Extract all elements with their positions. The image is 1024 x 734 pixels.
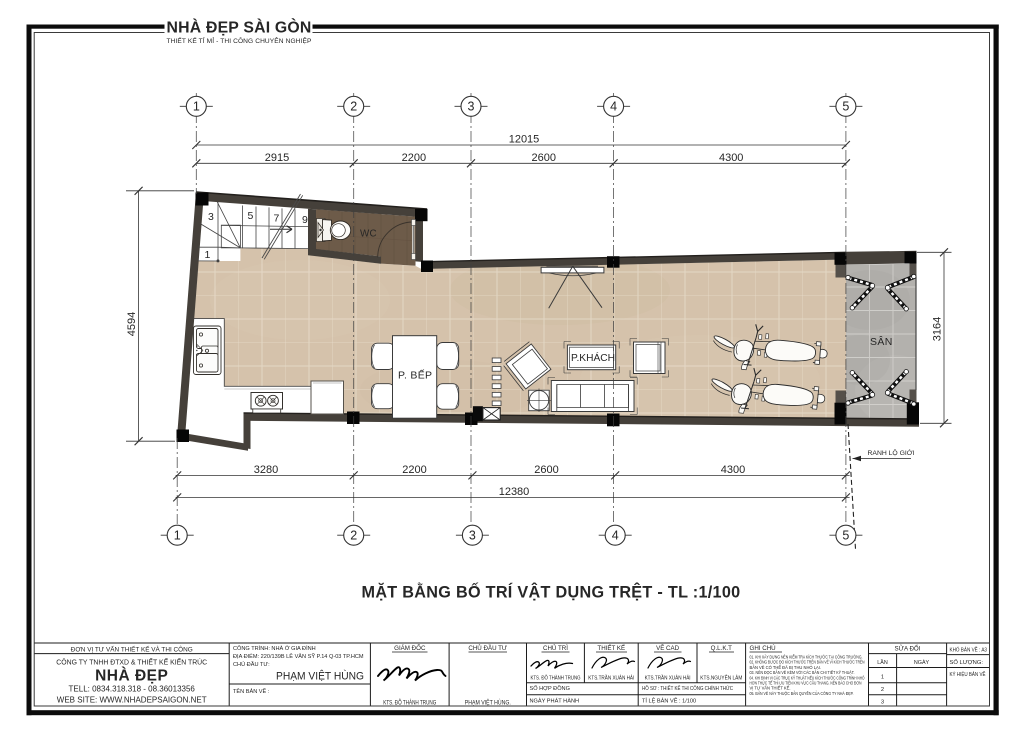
svg-text:2200: 2200 [402,152,426,164]
svg-text:4300: 4300 [719,152,743,164]
svg-text:KTS.TRẦN XUÂN HẢI: KTS.TRẦN XUÂN HẢI [588,674,634,681]
svg-text:2200: 2200 [402,464,426,476]
svg-text:NHÀ ĐẸP SÀI GÒN: NHÀ ĐẸP SÀI GÒN [167,17,312,36]
svg-text:NGÀY PHÁT HÀNH: NGÀY PHÁT HÀNH [530,698,580,705]
svg-text:1: 1 [193,100,200,114]
svg-text:1: 1 [205,249,211,261]
svg-text:2600: 2600 [532,152,556,164]
svg-text:12380: 12380 [499,486,530,498]
svg-text:1: 1 [881,675,884,681]
svg-text:3280: 3280 [254,464,278,476]
svg-text:3164: 3164 [932,317,944,341]
svg-text:KHỔ BẢN VẼ : A3: KHỔ BẢN VẼ : A3 [950,646,988,653]
svg-text:LẦN: LẦN [877,659,888,666]
svg-text:TỈ LỆ BẢN VẼ : 1/100: TỈ LỆ BẢN VẼ : 1/100 [642,697,696,705]
svg-text:CÔNG TRÌNH: NHÀ Ở GIA ĐÌNH: CÔNG TRÌNH: NHÀ Ở GIA ĐÌNH [233,645,316,652]
svg-text:1: 1 [174,529,181,543]
svg-text:4300: 4300 [721,464,745,476]
svg-text:4: 4 [612,529,619,543]
svg-text:Q.L.K.T: Q.L.K.T [711,645,733,652]
svg-text:GIÁM ĐỐC: GIÁM ĐỐC [394,645,426,652]
svg-text:KTS. ĐỖ THÀNH TRUNG: KTS. ĐỖ THÀNH TRUNG [531,674,581,681]
svg-text:3: 3 [469,529,476,543]
svg-text:2915: 2915 [265,152,289,164]
svg-text:KTS.NGUYỄN LÂM: KTS.NGUYỄN LÂM [700,674,742,681]
svg-text:3: 3 [881,700,884,706]
svg-text:3: 3 [468,100,475,114]
svg-text:P. BẾP: P. BẾP [398,369,432,382]
svg-text:WEB SITE: WWW.NHADEPSAIGON.NET: WEB SITE: WWW.NHADEPSAIGON.NET [57,695,207,704]
svg-text:4594: 4594 [126,312,138,336]
svg-text:5: 5 [842,529,849,543]
svg-text:GHI CHÚ: GHI CHÚ [750,645,776,652]
svg-text:VẼ CAD: VẼ CAD [656,645,680,652]
svg-text:5: 5 [842,100,849,114]
svg-text:PHẠM VIỆT HÙNG.: PHẠM VIỆT HÙNG. [465,699,511,707]
svg-text:SÂN: SÂN [870,335,893,348]
svg-text:9: 9 [302,214,308,226]
svg-text:KTS.TRẦN XUÂN HẢI: KTS.TRẦN XUÂN HẢI [645,674,691,681]
svg-text:MẶT BẰNG BỐ TRÍ VẬT DỤNG TRỆT: MẶT BẰNG BỐ TRÍ VẬT DỤNG TRỆT - TL :1/10… [362,581,741,601]
svg-text:12015: 12015 [509,134,540,146]
svg-text:NGÀY: NGÀY [914,659,930,666]
svg-text:SỬA ĐỔI: SỬA ĐỔI [895,645,921,652]
svg-text:2600: 2600 [534,464,558,476]
svg-text:SỐ LƯỢNG:: SỐ LƯỢNG: [950,659,984,666]
svg-text:THIẾT KẾ: THIẾT KẾ [597,645,625,652]
svg-text:KÝ HIỆU BẢN VẼ: KÝ HIỆU BẢN VẼ [950,670,986,678]
svg-text:3: 3 [208,211,214,223]
svg-text:P.KHÁCH: P.KHÁCH [571,351,615,364]
svg-text:4: 4 [610,100,617,114]
svg-text:05. BẢN VẼ NÀY THUỘC BẢN QUYỀN: 05. BẢN VẼ NÀY THUỘC BẢN QUYỀN CỦA CÔNG … [750,691,854,696]
svg-text:SỐ HỢP ĐỒNG: SỐ HỢP ĐỒNG [530,685,570,692]
svg-text:KTS. ĐỖ THÀNH TRUNG: KTS. ĐỖ THÀNH TRUNG [383,700,436,707]
svg-text:2: 2 [350,529,357,543]
svg-text:CHỦ ĐẦU TƯ:: CHỦ ĐẦU TƯ: [233,661,270,668]
svg-text:2: 2 [350,100,357,114]
svg-text:CHỦ TRÌ: CHỦ TRÌ [543,645,568,652]
svg-text:5: 5 [248,210,254,222]
svg-text:NHÀ ĐẸP: NHÀ ĐẸP [95,668,168,685]
svg-text:RANH LỘ GIỚI: RANH LỘ GIỚI [868,448,915,457]
svg-text:HỒ SƠ : THIẾT KẾ THI CÔNG CHÍN: HỒ SƠ : THIẾT KẾ THI CÔNG CHÍNH THỨC [642,685,733,692]
svg-text:CHỦ ĐẦU TƯ: CHỦ ĐẦU TƯ [468,645,508,652]
svg-text:TELL: 0834.318.318 - 08.3601: TELL: 0834.318.318 - 08.36013356 [69,685,196,694]
svg-text:PHẠM VIỆT HÙNG: PHẠM VIỆT HÙNG [276,670,364,683]
svg-text:2: 2 [881,687,884,693]
svg-text:TÊN BẢN VẼ :: TÊN BẢN VẼ : [233,687,270,695]
svg-text:WC: WC [360,229,377,240]
svg-text:ĐỊA ĐIỂM: 220/139B LÊ VĂN SỸ P: ĐỊA ĐIỂM: 220/139B LÊ VĂN SỸ P.14 Q-03 T… [233,652,364,660]
svg-text:7: 7 [274,213,280,225]
